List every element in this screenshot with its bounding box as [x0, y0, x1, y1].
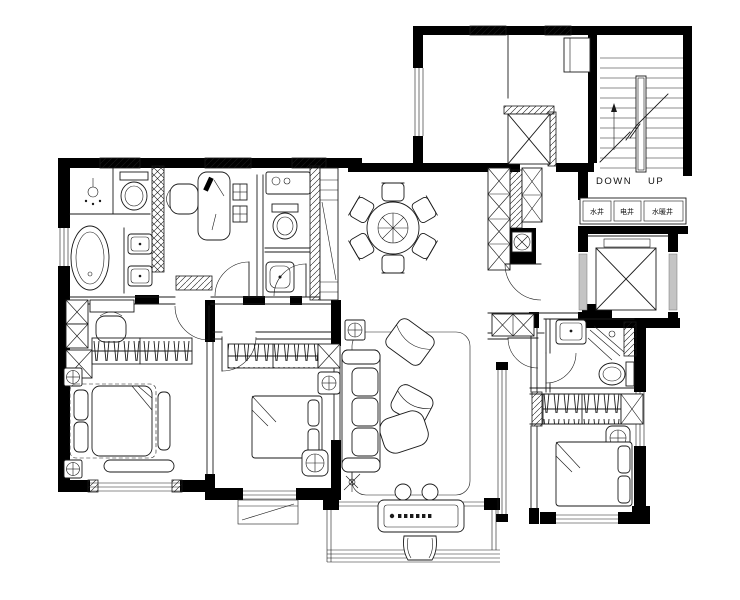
- wardrobe: [92, 338, 192, 364]
- armchair: [383, 316, 437, 368]
- pillow: [308, 400, 319, 426]
- study-door: [215, 262, 249, 296]
- floor-lamp: [345, 320, 365, 340]
- electric-shaft-label: 电井: [620, 207, 634, 216]
- nightstand-lamp: [302, 450, 328, 476]
- foot-bench: [104, 460, 174, 472]
- shoe-cabinet: [522, 168, 542, 222]
- stair-up-label: UP: [648, 176, 664, 187]
- sofa-armrest: [342, 458, 380, 472]
- bedroom-3: [543, 394, 643, 506]
- bathtub: [71, 226, 109, 290]
- bathroom-3: [546, 320, 634, 386]
- stool: [422, 484, 438, 500]
- double-bed: [70, 384, 156, 458]
- tall-cabinet: [320, 168, 338, 300]
- pillow: [74, 422, 88, 452]
- entry-cabinet: [488, 168, 510, 270]
- nightstand-lamp: [64, 460, 82, 478]
- office-chair: [167, 184, 199, 214]
- double-vanity: [124, 228, 152, 293]
- sofa: [342, 350, 380, 472]
- double-bed: [556, 442, 632, 506]
- master-bedroom: [64, 300, 209, 478]
- water-heater: [512, 232, 532, 252]
- stair-down-label: DOWN: [596, 176, 632, 187]
- dressing-table: [90, 300, 134, 312]
- dressing-cabinets: [66, 300, 92, 378]
- private-elevator: [579, 236, 677, 310]
- piano: [378, 500, 464, 532]
- utility-shafts: 水井 电井 水暖井: [580, 198, 686, 224]
- dining-area: [349, 183, 438, 273]
- sofa-cushion: [352, 428, 378, 456]
- water-shaft-label: 水井: [590, 207, 604, 216]
- bathroom3-door: [546, 353, 576, 383]
- toilet: [120, 172, 148, 210]
- double-bed: [252, 396, 322, 458]
- sofa-cushion: [352, 398, 378, 426]
- stairwell: DOWN UP: [596, 58, 683, 187]
- living-room: [342, 316, 470, 560]
- elevator-door-right: [669, 254, 677, 310]
- lazy-susan: [378, 213, 408, 243]
- desk: [198, 172, 230, 240]
- nightstand-lamp: [64, 368, 82, 386]
- bedroom-2: [222, 337, 340, 476]
- bookshelf: [233, 184, 247, 222]
- plumbing-shaft-label: 水暖井: [652, 207, 673, 216]
- floor-plan: DOWN UP 水井 电井 水暖井: [0, 0, 740, 600]
- washbasin: [556, 320, 586, 344]
- hall-cabinet: [492, 314, 534, 336]
- elevator-door-left: [579, 254, 587, 310]
- lobby-cabinet: [564, 38, 590, 72]
- guest-bathroom: [266, 172, 310, 296]
- stool: [395, 484, 411, 500]
- pillow: [74, 390, 88, 420]
- piano-stool: [404, 536, 437, 560]
- public-elevator: [508, 114, 550, 164]
- shower: [588, 326, 624, 360]
- sofa-armrest: [342, 350, 380, 364]
- pillow: [618, 446, 630, 473]
- wardrobe: [228, 344, 340, 368]
- floor-plan-canvas: DOWN UP 水井 电井 水暖井: [0, 0, 740, 600]
- nightstand-lamp: [318, 372, 340, 394]
- elevator-lobby: [504, 35, 590, 166]
- toilet: [599, 362, 634, 386]
- hall-door: [508, 338, 538, 368]
- master-door: [175, 306, 209, 340]
- low-cabinet: [176, 276, 212, 290]
- sofa-cushion: [352, 368, 378, 396]
- shower: [85, 178, 101, 205]
- dressing-chair: [96, 312, 126, 342]
- main-bathroom: [71, 168, 152, 293]
- plant: [344, 472, 360, 492]
- study: [167, 172, 250, 296]
- pillow: [618, 476, 630, 503]
- wardrobe: [543, 394, 643, 424]
- toilet: [272, 204, 298, 239]
- stair-direction-arrow: [611, 103, 617, 150]
- bed-bench: [158, 392, 170, 450]
